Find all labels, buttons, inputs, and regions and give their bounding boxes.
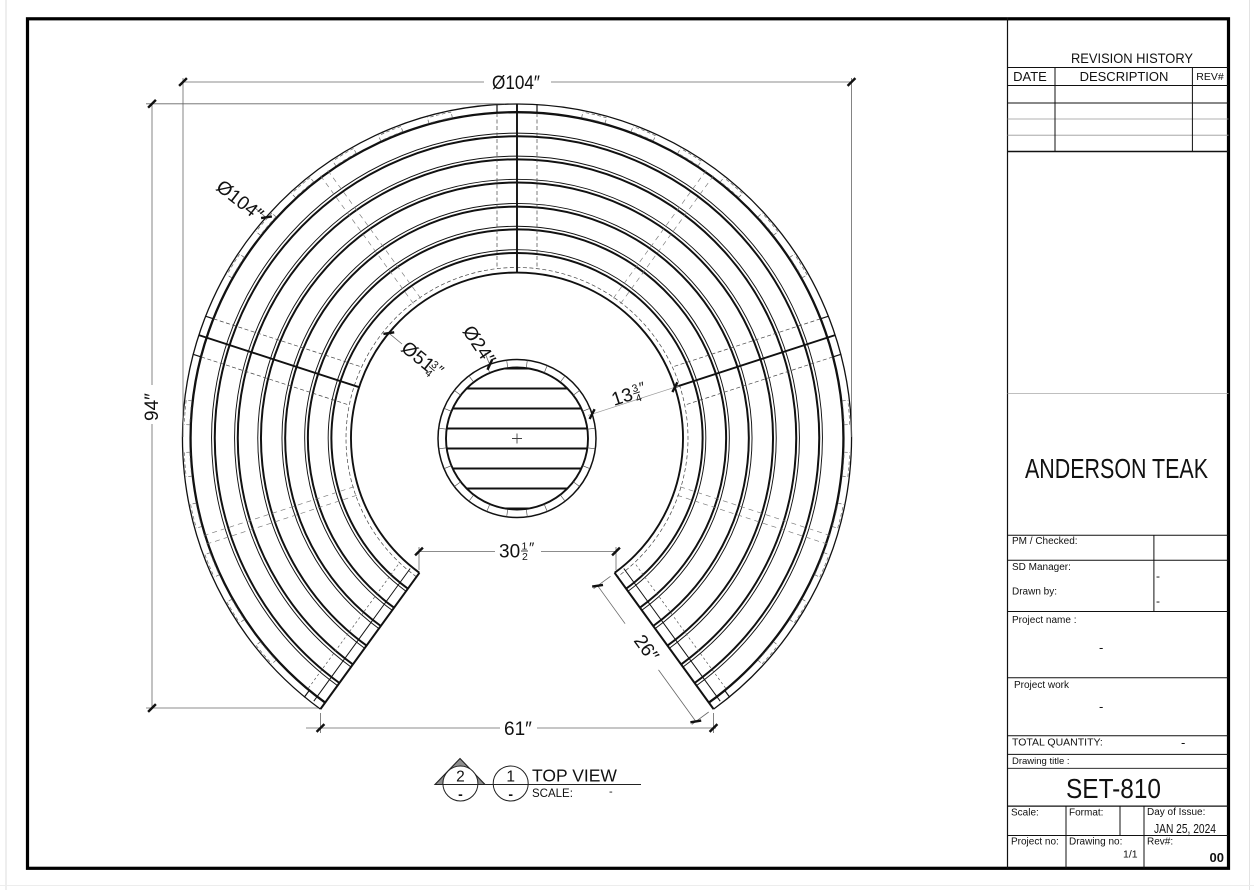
- svg-text:-: -: [1156, 569, 1160, 583]
- svg-text:Day of Issue:: Day of Issue:: [1147, 807, 1205, 818]
- svg-text:Rev#:: Rev#:: [1147, 837, 1173, 848]
- svg-text:1: 1: [506, 769, 515, 786]
- svg-text:JAN 25, 2024: JAN 25, 2024: [1154, 822, 1216, 836]
- svg-text:ANDERSON TEAK: ANDERSON TEAK: [1025, 453, 1208, 484]
- svg-text:-: -: [508, 786, 513, 802]
- svg-text:2: 2: [456, 769, 465, 786]
- svg-text:Ø104″: Ø104″: [492, 73, 540, 94]
- svg-text:Format:: Format:: [1069, 808, 1103, 819]
- svg-text:TOP VIEW: TOP VIEW: [532, 766, 617, 786]
- svg-text:00: 00: [1210, 850, 1224, 865]
- svg-text:94″: 94″: [142, 393, 163, 421]
- svg-text:-: -: [1099, 640, 1103, 655]
- svg-text:PM / Checked:: PM / Checked:: [1012, 536, 1078, 547]
- svg-text:DESCRIPTION: DESCRIPTION: [1080, 69, 1169, 84]
- svg-text:″: ″: [529, 540, 535, 557]
- svg-text:61″: 61″: [504, 719, 532, 740]
- svg-text:Drawn by:: Drawn by:: [1012, 587, 1057, 598]
- svg-text:TOTAL QUANTITY:: TOTAL QUANTITY:: [1012, 737, 1103, 749]
- svg-text:Drawing title :: Drawing title :: [1012, 756, 1070, 767]
- svg-text:Scale:: Scale:: [1011, 808, 1039, 819]
- svg-text:-: -: [1181, 735, 1185, 750]
- svg-text:2: 2: [522, 551, 528, 563]
- svg-text:Project name :: Project name :: [1012, 615, 1076, 626]
- svg-text:-: -: [1099, 699, 1103, 714]
- svg-text:Project no:: Project no:: [1011, 837, 1059, 848]
- svg-text:REVISION HISTORY: REVISION HISTORY: [1071, 50, 1194, 66]
- svg-text:-: -: [609, 786, 613, 798]
- svg-text:Drawing no:: Drawing no:: [1069, 837, 1122, 848]
- svg-text:DATE: DATE: [1013, 69, 1047, 84]
- svg-text:30: 30: [499, 542, 520, 563]
- svg-text:SD Manager:: SD Manager:: [1012, 562, 1071, 573]
- svg-text:SET-810: SET-810: [1066, 773, 1161, 804]
- svg-text:-: -: [458, 786, 463, 802]
- svg-text:-: -: [1156, 594, 1160, 608]
- svg-text:SCALE:: SCALE:: [532, 788, 573, 800]
- svg-text:1/1: 1/1: [1123, 849, 1138, 861]
- svg-text:REV#: REV#: [1196, 71, 1224, 83]
- svg-text:Project work: Project work: [1014, 680, 1070, 691]
